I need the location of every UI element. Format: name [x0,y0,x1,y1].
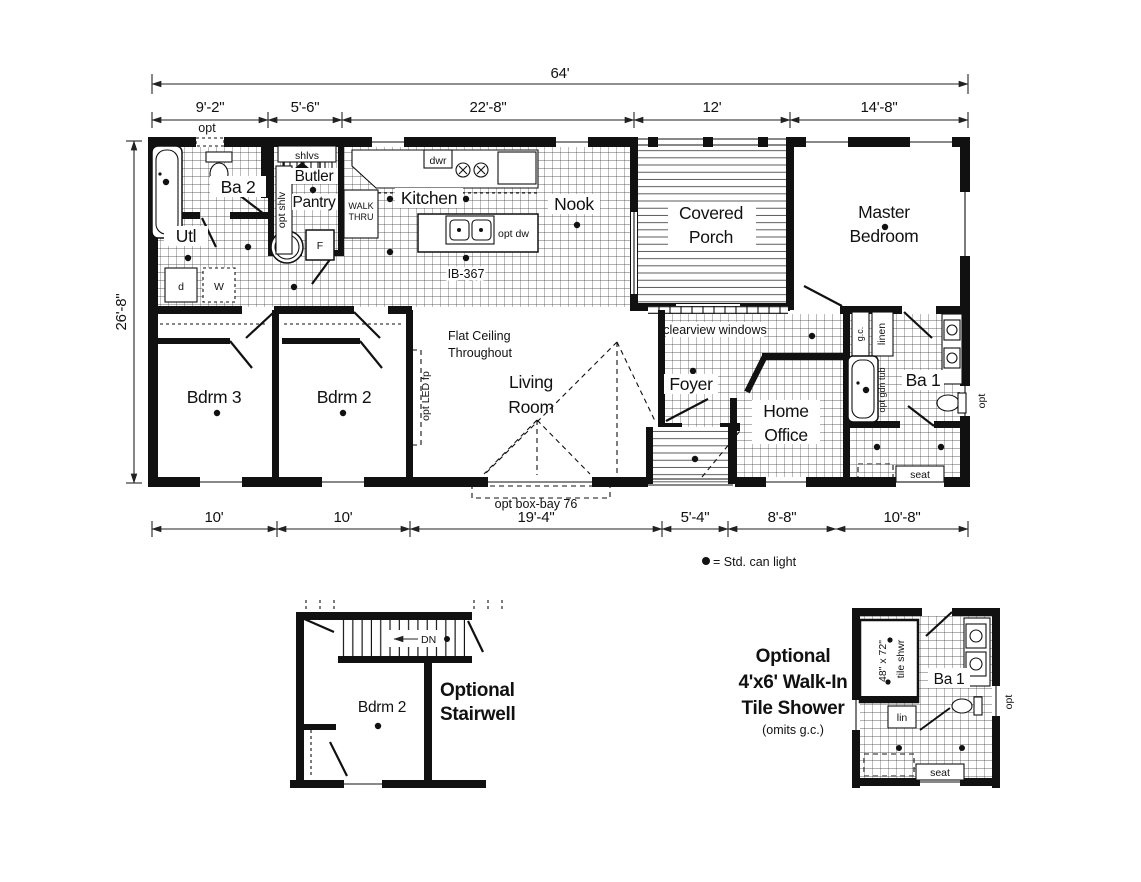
room-label-kitchen: Kitchen [401,188,457,208]
walk-thru: WALK THRU [344,190,378,238]
shlvs-label: shlvs [295,150,319,162]
kitchen-island: opt dw [418,214,538,252]
dim-label-bottom-2: 10' [334,509,353,526]
dwr-label: dwr [430,155,447,167]
porch-screen-wall [634,137,790,147]
shower-title-3: Tile Shower [742,698,846,719]
lin-label: lin [897,712,908,724]
opt-window-label: opt [976,394,988,409]
room-label-room: Room [508,397,553,417]
room-label-nook: Nook [554,194,594,214]
floor-plan-drawing: 64' 9'-2" 5'-6" 22'-8" 12' 14'-8" 26'-8"… [0,0,1141,882]
room-label-butler: Butler [295,168,334,185]
room-label-ba2: Ba 2 [221,177,256,197]
tile-shwr-label: tile shwr [895,639,907,678]
room-label-bdrm2: Bdrm 2 [317,387,372,407]
dn-label: DN [421,634,436,646]
opt-box-bay: opt box-bay 76 [472,486,610,511]
legend-std-can-light: = Std. can light [702,555,797,569]
shower-title-1: Optional [756,646,831,667]
stairwell-title-2: Stairwell [440,704,515,725]
dim-label-bottom-4: 5'-4" [681,509,710,526]
garden-tub-icon [848,356,878,422]
dim-label-overall-width: 64' [551,65,570,82]
shower-title-2: 4'x6' Walk-In [739,672,848,693]
inset-optional-tile-shower: Optional 4'x6' Walk-In Tile Shower (omit… [739,608,1015,788]
can-light-icon [702,557,710,565]
clearview-window-band [648,306,788,314]
room-label-master: Master [858,202,910,222]
linen-cabinet: lin [888,706,916,728]
furnace-label: F [317,240,323,252]
room-label-utl: Utl [176,226,197,246]
dim-label-bottom-3: 19'-4" [517,509,554,526]
legend-text: = Std. can light [713,555,797,569]
opt-dw-label: opt dw [498,228,529,240]
dim-label-top-1: 9'-2" [196,99,225,116]
dim-label-depth: 26'-8" [113,293,130,330]
stair-closet [300,724,347,778]
floor-plan-page: 64' 9'-2" 5'-6" 22'-8" 12' 14'-8" 26'-8"… [0,0,1141,882]
entry-stoop [648,427,733,485]
dimension-overall-width: 64' [152,65,968,94]
room-label-pantry: Pantry [293,194,337,211]
dim-label-bottom-6: 10'-8" [883,509,920,526]
dimension-left-depth: 26'-8" [113,141,142,483]
dim-label-top-4: 12' [703,99,722,116]
opt-window-top-label: opt [198,121,216,135]
shower-title-note: (omits g.c.) [762,723,824,737]
inset-room-label-ba1: Ba 1 [934,671,965,688]
refrigerator-icon [498,152,536,184]
shower-seat: seat [916,764,964,780]
dim-label-bottom-5: 8'-8" [768,509,797,526]
kitchen-counter: dwr [352,150,538,193]
inset-seat-label: seat [930,767,950,779]
note-flat-ceiling-1: Flat Ceiling [448,329,511,343]
opt-led-fireplace: opt LED fp [412,350,432,445]
opt-led-fp-label: opt LED fp [420,371,432,421]
wall-continuation-ticks [306,600,502,610]
walk-thru-label-1: WALK [348,201,373,211]
dryer-label: d [178,281,184,293]
room-label-covered: Covered [679,203,743,223]
stairwell-title-1: Optional [440,680,515,701]
room-label-ba1: Ba 1 [906,370,941,390]
room-label-bdrm3: Bdrm 3 [187,387,242,407]
dimension-bottom-segments: 10' 10' 19'-4" 5'-4" 8'-8" 10'-8" [152,509,968,537]
opt-gdn-tub-label: opt gdn tub [877,367,887,412]
dimension-top-segments: 9'-2" 5'-6" 22'-8" 12' 14'-8" [152,99,968,128]
room-label-porch: Porch [689,227,733,247]
toilet-icon [937,393,966,413]
model-number: IB-367 [448,267,485,281]
note-flat-ceiling-2: Throughout [448,346,512,360]
vanity-double-sink-icon [942,314,962,384]
double-sink-icon [446,216,494,244]
linen-label: linen [876,323,888,345]
shower-size-label: 48" x 72" [877,640,889,682]
gc-label: g.c. [855,327,865,342]
staircase: DN [338,612,483,663]
room-label-home: Home [763,401,808,421]
clearview-windows-label: clearview windows [663,323,767,337]
walk-in-tile-shower: 48" x 72" tile shwr [860,620,918,702]
walk-thru-label-2: THRU [349,212,374,222]
toilet-icon [952,697,982,715]
dim-label-top-2: 5'-6" [291,99,320,116]
room-label-office: Office [764,425,808,445]
dim-label-top-3: 22'-8" [469,99,506,116]
dim-label-top-5: 14'-8" [860,99,897,116]
room-label-living: Living [509,372,553,392]
dim-label-bottom-1: 10' [205,509,224,526]
inset-opt-label: opt [1003,695,1015,710]
opt-box-bay-label: opt box-bay 76 [495,497,578,511]
seat-label: seat [910,469,930,481]
inset-room-label-bdrm2: Bdrm 2 [358,699,406,716]
main-floor-plan: opt LED fp opt box-bay 76 d [148,121,988,511]
opt-shlv-label: opt shlv [276,191,288,228]
washer-label: W [214,281,224,293]
inset-optional-stairwell: DN Bdrm 2 Optional Stairwell [290,600,515,788]
room-label-bedroom: Bedroom [850,226,919,246]
room-label-foyer: Foyer [669,374,713,394]
